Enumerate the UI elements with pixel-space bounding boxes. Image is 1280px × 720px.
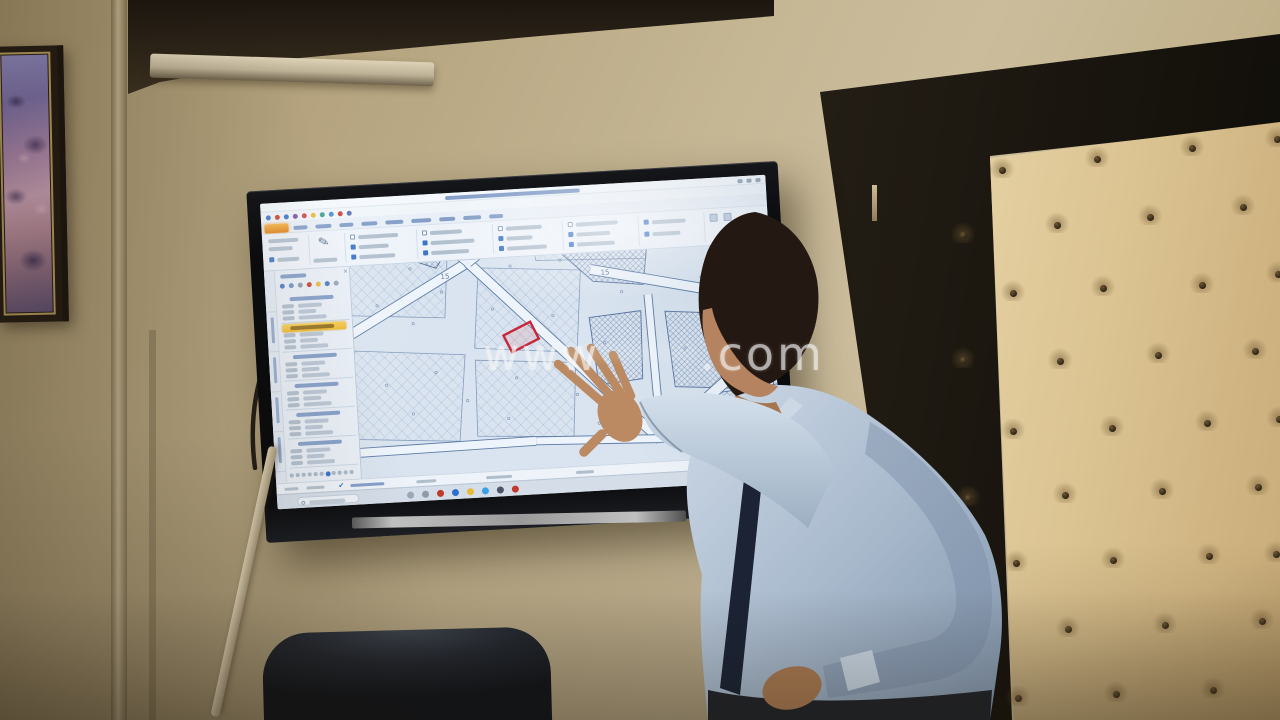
record-header-text [296,411,340,417]
tabstrip-separator [274,431,283,433]
ribbon-checkbox[interactable] [498,236,503,241]
record-field-label [287,397,299,401]
record-field-value [307,459,335,464]
tuft-button [1050,471,1080,503]
window-control-button[interactable] [746,179,751,183]
qat-icon[interactable] [311,212,316,217]
tuft-button [1262,115,1280,147]
ribbon-checkbox-label [358,233,398,239]
edge-icon[interactable] [452,489,459,496]
ribbon-checkbox-label [430,229,462,234]
record-field-value [300,338,318,343]
snap-check-icon[interactable]: ✔ [338,481,344,490]
tuft-button [1264,395,1280,427]
office-chair-back [262,626,553,720]
record-header-text [293,353,337,359]
record-field-value [298,309,316,314]
record-field-label [289,426,301,430]
ribbon-checkbox[interactable] [498,226,503,231]
tuft-button [1263,250,1280,282]
vertical-tab[interactable] [277,437,281,463]
block-number-label: 15 [440,273,449,282]
tuft-button [1101,670,1131,702]
tuft-button [1228,183,1258,215]
panel-close-icon[interactable]: × [343,269,349,275]
tuft-button [1247,597,1277,629]
tuft-button [1088,264,1118,296]
window-control-button[interactable] [737,179,742,183]
tuft-button [1098,536,1128,568]
vertical-tab[interactable] [275,397,279,423]
record-field-value [300,343,328,348]
record-field-value [304,401,332,406]
record-field-label [283,316,295,320]
pager-nav-icon[interactable] [320,472,324,476]
record-field-label [284,333,296,337]
tuft-button [1261,530,1280,562]
qat-icon[interactable] [320,212,325,217]
office-presentation-scene: ✎ × 1515 ✔ [0,0,1280,720]
tuft-button [1240,327,1270,359]
wall-trim-line [149,330,156,720]
record-header-text [289,295,333,301]
record-field-value [298,302,322,307]
ribbon-group-separator [416,229,419,259]
panel-toolbar-icon[interactable] [325,281,330,286]
tuft-button [1198,666,1228,698]
ribbon-group-separator [492,224,495,254]
qat-icon[interactable] [329,211,334,216]
ribbon-checkbox-label [430,239,474,245]
tabstrip-separator [270,351,279,353]
ribbon-checkbox-label [506,235,532,240]
panel-toolbar-icon[interactable] [316,281,321,286]
tabstrip-separator [267,311,276,313]
tuft-button [987,146,1017,178]
tuft-button [1192,399,1222,431]
skype-icon[interactable] [482,487,489,494]
qat-icon[interactable] [275,214,280,219]
record-field-value [306,447,330,452]
tuft-button [1143,331,1173,363]
record-field-value [307,454,325,459]
ribbon-checkbox[interactable] [499,246,504,251]
tuft-button [1243,463,1273,495]
record-field-label [287,391,299,395]
office-icon[interactable] [497,486,504,493]
ribbon-checkbox[interactable] [351,244,356,249]
ribbon-tab[interactable] [361,221,377,225]
ribbon-checkbox[interactable] [350,234,355,239]
tuft-button [1053,605,1083,637]
ribbon-label [313,257,337,262]
record-header-text [294,382,338,388]
tuft-button [1187,261,1217,293]
ribbon-group-separator [344,233,347,263]
search-placeholder-text [309,498,345,504]
record-field-label [289,420,301,424]
ribbon-tab[interactable] [315,224,331,228]
ribbon-tab[interactable] [489,214,503,218]
record-field-label [284,345,296,349]
qat-icon[interactable] [284,214,289,219]
record-field-label [289,432,301,436]
parcel-grid-block [350,345,470,448]
panel-title-text [280,273,306,278]
record-field-value [305,430,333,435]
pager-nav-icon[interactable] [308,472,312,476]
panel-toolbar-icon[interactable] [307,282,312,287]
ribbon-checkbox[interactable] [351,254,356,259]
record-field-value [305,418,329,423]
tuft-button [1194,532,1224,564]
pager-nav-icon[interactable] [290,473,294,477]
ribbon-checkbox[interactable] [422,240,427,245]
pinned-app-icon[interactable] [422,491,429,498]
ribbon-group-separator [308,235,311,265]
record-field-value [305,425,323,430]
status-item [284,487,298,491]
ribbon-checkbox-label [431,249,469,255]
ribbon-checkbox-label [359,253,395,259]
ribbon-checkbox-label [277,257,299,262]
record-field-value [299,314,327,319]
record-field-label [285,362,297,366]
qat-icon[interactable] [347,210,352,215]
draw-pencil-icon[interactable]: ✎ [317,235,331,250]
ribbon-tab[interactable] [385,220,403,225]
status-item [306,485,324,490]
media-red-icon[interactable] [512,485,519,492]
record-card[interactable] [285,435,362,468]
pager-nav-icon[interactable] [350,470,354,474]
pager-nav-icon[interactable] [302,473,306,477]
ribbon-tab[interactable] [339,222,353,226]
ribbon-checkbox[interactable] [423,250,428,255]
ribbon-checkbox[interactable] [422,230,427,235]
tuft-button [1135,193,1165,225]
browser-red-icon[interactable] [437,490,444,497]
panel-toolbar-icon[interactable] [298,283,303,288]
record-field-label [286,368,298,372]
record-card[interactable] [276,291,353,324]
ribbon-checkbox[interactable] [269,257,274,262]
ribbon-tab[interactable] [463,215,481,220]
tuft-button [1082,135,1112,167]
record-field-value [303,389,327,394]
vertical-tab[interactable] [273,357,277,383]
record-field-label [291,455,303,459]
record-header-text [298,440,342,446]
pager-nav-icon[interactable] [338,471,342,475]
wall-corner-trim [111,0,127,720]
status-item [486,474,512,479]
parcel-records-panel[interactable]: × [275,267,362,483]
ribbon-tab[interactable] [411,218,431,223]
ribbon-label [268,238,298,243]
pager-nav-icon[interactable] [344,470,348,474]
search-icon [301,500,305,504]
tabstrip-separator [276,471,285,473]
vertical-tab[interactable] [271,317,275,343]
pager-nav-icon[interactable] [332,471,336,475]
record-field-value [302,367,320,372]
ribbon-tab[interactable] [439,217,455,221]
record-field-label [282,310,294,314]
tabstrip-separator [272,391,281,393]
record-card[interactable] [281,378,358,411]
panel-toolbar-icon[interactable] [280,284,285,289]
tuft-button [1147,467,1177,499]
qat-icon[interactable] [338,211,343,216]
record-card[interactable] [280,349,357,382]
status-item [416,479,436,484]
qat-icon[interactable] [266,215,271,220]
taskbar-search-input[interactable] [297,494,359,507]
ribbon-tab[interactable] [293,225,307,229]
start-icon[interactable] [285,498,292,505]
tuft-button [1177,124,1207,156]
file-menu-button[interactable] [264,223,288,233]
pinned-app-icon[interactable] [407,491,414,498]
painting-artwork [1,55,52,313]
record-field-label [291,461,303,465]
tuft-button [1097,404,1127,436]
framed-painting [0,45,69,322]
tuft-button [1150,601,1180,633]
presenter-man [540,190,1050,720]
panel-toolbar-icon[interactable] [289,283,294,288]
ribbon-checkbox-label [506,225,542,231]
window-control-button[interactable] [755,178,760,182]
ribbon-checkbox-label [359,244,389,249]
record-field-label [290,449,302,453]
ribbon-label [269,246,293,251]
status-item [350,482,384,487]
record-field-label [282,304,294,308]
files-icon[interactable] [467,488,474,495]
record-field-value [300,331,324,336]
record-field-value [301,360,325,365]
pager-current-page[interactable] [326,471,331,476]
record-card[interactable] [283,407,360,440]
record-field-value [303,396,321,401]
record-field-value [302,372,330,377]
pager-nav-icon[interactable] [314,472,318,476]
record-field-label [286,374,298,378]
qat-icon[interactable] [302,213,307,218]
pager-nav-icon[interactable] [296,473,300,477]
record-field-label [284,339,296,343]
record-field-label [288,403,300,407]
record-card[interactable] [278,320,355,353]
qat-icon[interactable] [293,213,298,218]
panel-toolbar-icon[interactable] [334,280,339,285]
